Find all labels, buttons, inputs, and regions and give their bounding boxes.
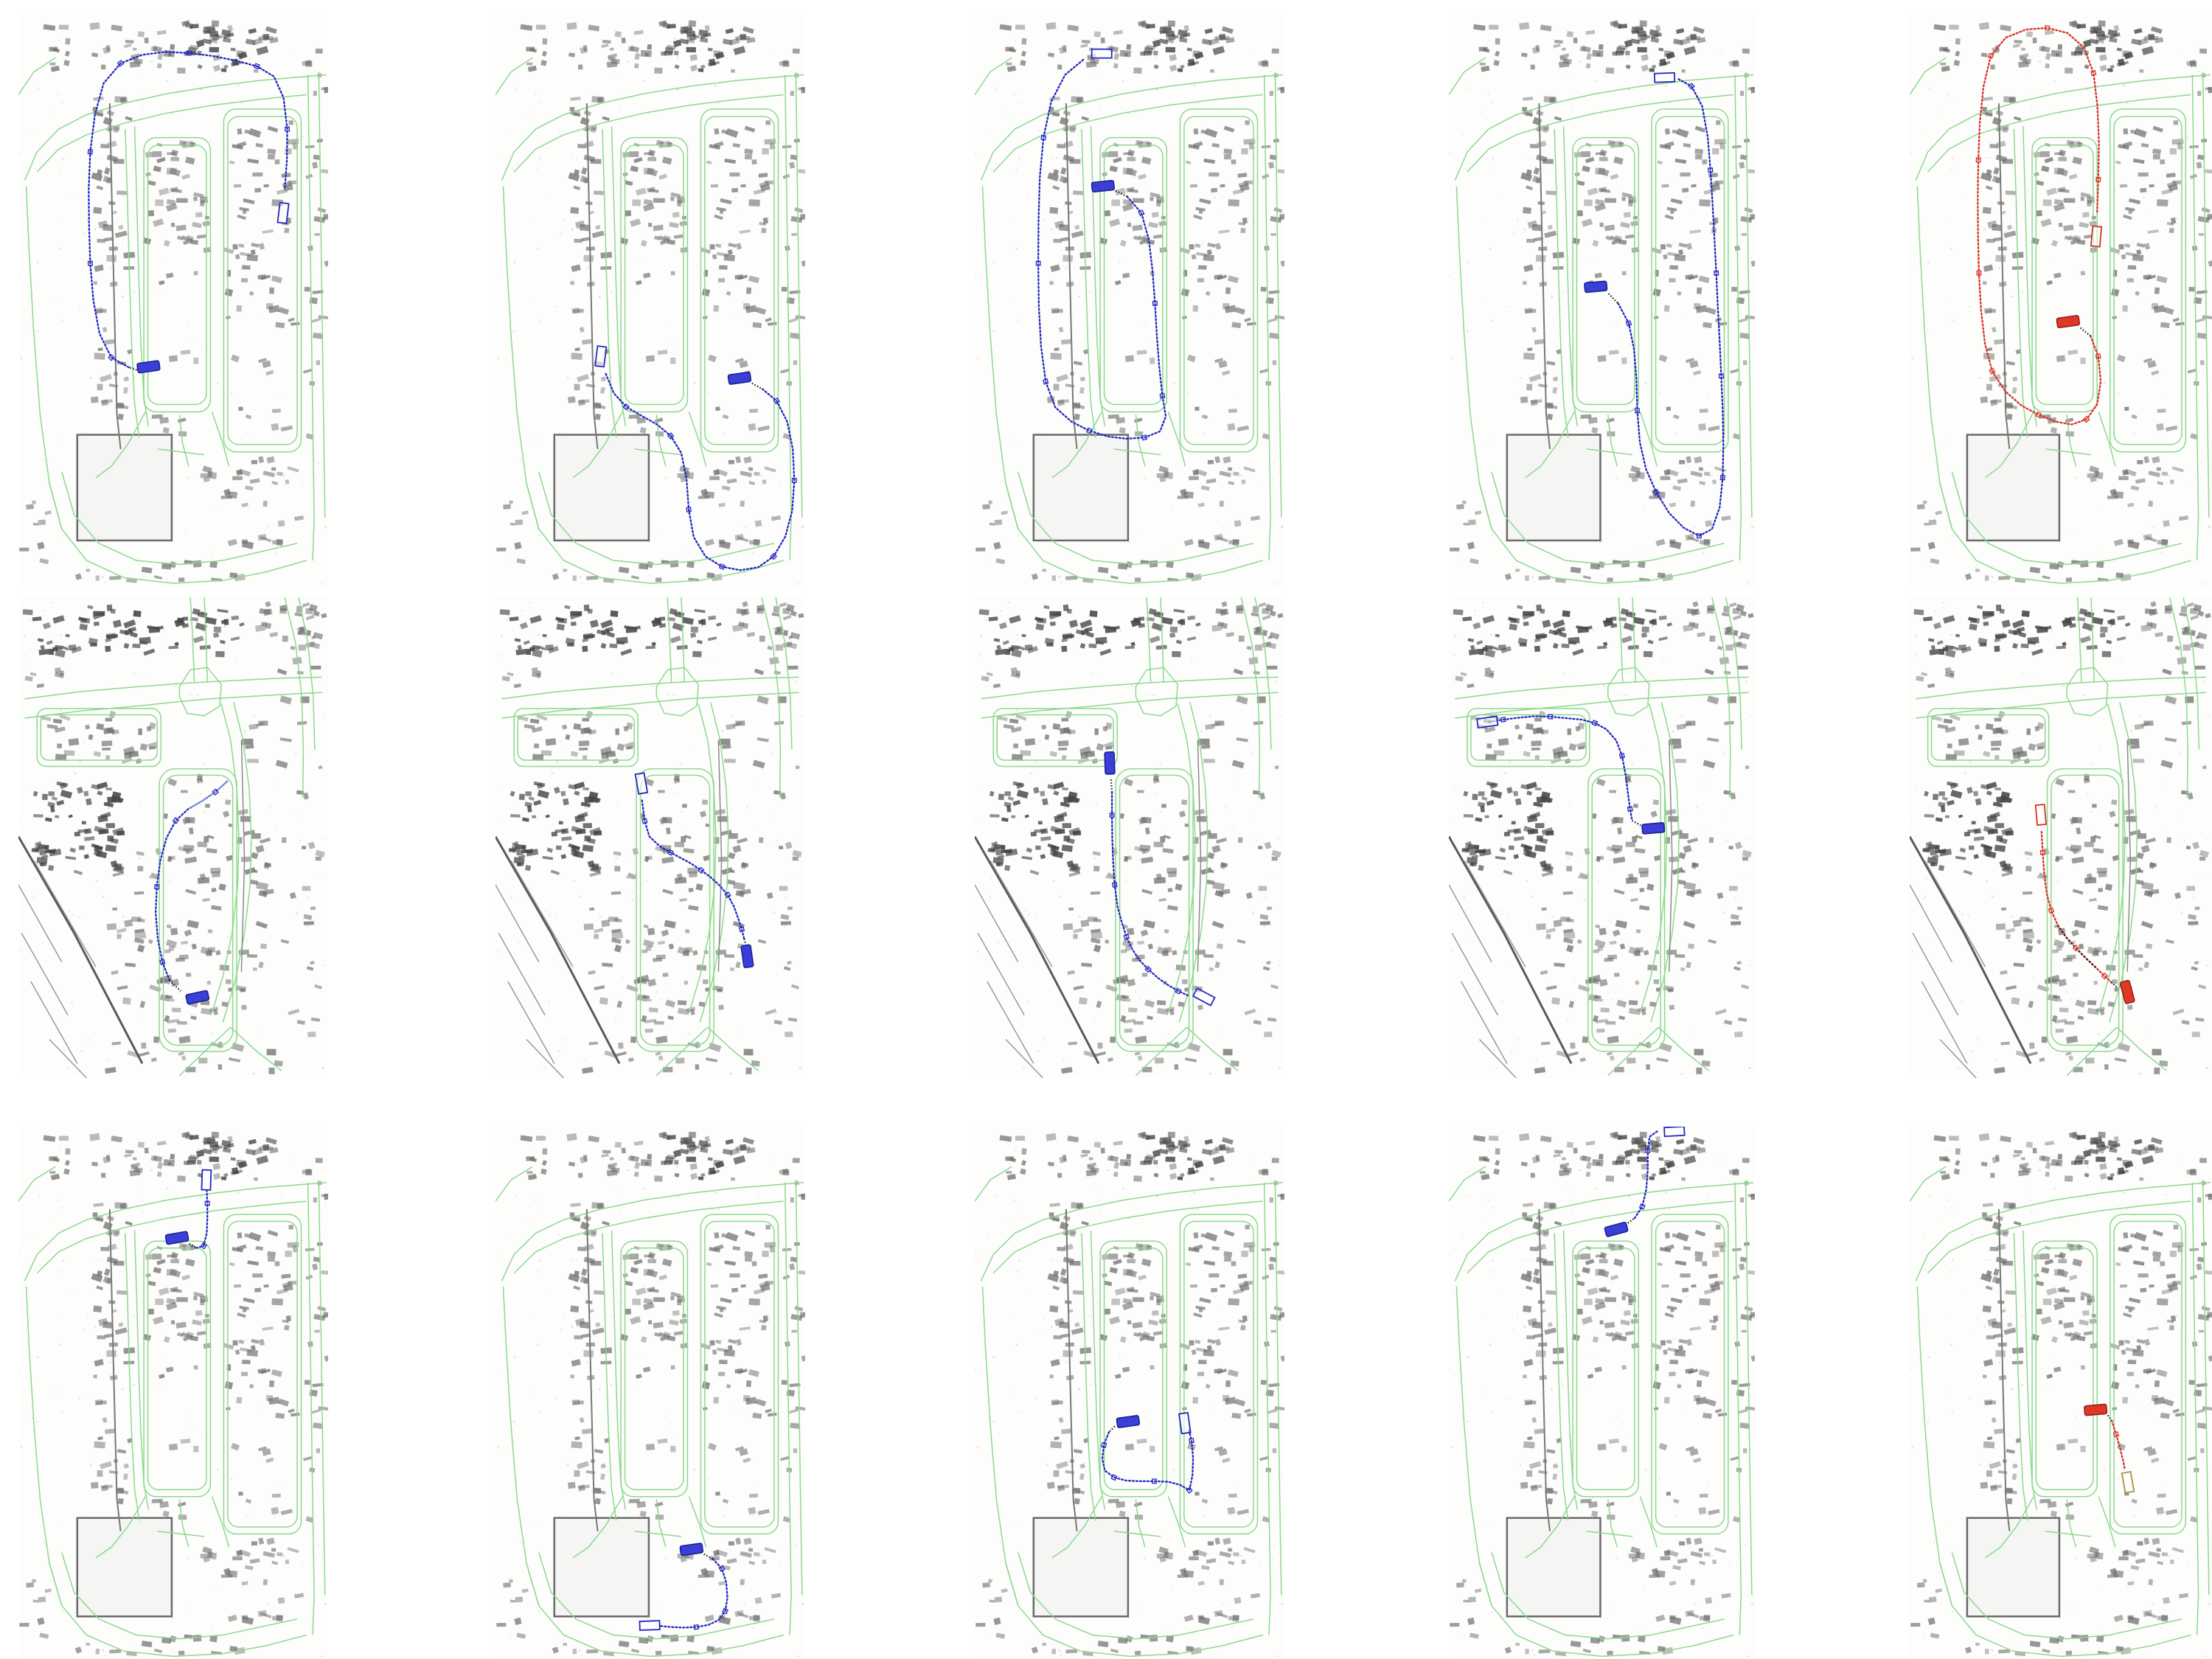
map-background — [1449, 1127, 1755, 1659]
map-compound-outline — [1034, 1518, 1128, 1617]
map-svg-r1c3 — [975, 15, 1284, 586]
map-background — [18, 1127, 328, 1659]
map-background — [1449, 595, 1755, 1078]
goal-box — [1179, 1413, 1191, 1433]
map-panel-r2c4 — [1449, 595, 1755, 1078]
map-panel-r1c2 — [495, 15, 805, 586]
map-background — [1910, 15, 2212, 586]
goal-box — [639, 1621, 659, 1630]
map-panel-r1c4 — [1449, 15, 1755, 586]
map-background — [975, 595, 1284, 1078]
map-svg-r3c5 — [1910, 1127, 2212, 1659]
map-svg-r3c3 — [975, 1127, 1284, 1659]
goal-box — [2091, 226, 2101, 247]
map-compound-outline — [554, 435, 649, 540]
map-compound-outline — [1967, 435, 2059, 540]
map-panel-r1c1 — [18, 15, 328, 586]
goal-box — [1477, 716, 1498, 728]
map-panel-r3c5 — [1910, 1127, 2212, 1659]
map-panel-r1c5 — [1910, 15, 2212, 586]
vehicle-box — [1105, 752, 1115, 774]
map-background — [495, 1127, 805, 1659]
map-panel-r2c5 — [1910, 595, 2212, 1078]
map-svg-r2c1 — [18, 595, 328, 1078]
map-svg-r1c1 — [18, 15, 328, 586]
map-background — [975, 1127, 1284, 1659]
map-compound-outline — [1507, 435, 1601, 540]
goal-box — [2036, 804, 2046, 825]
map-compound-outline — [77, 1518, 172, 1617]
vehicle-box — [2084, 1404, 2107, 1416]
map-svg-r2c5 — [1910, 595, 2212, 1078]
map-svg-r1c2 — [495, 15, 805, 586]
map-background — [975, 15, 1284, 586]
map-svg-r2c3 — [975, 595, 1284, 1078]
map-compound-outline — [554, 1518, 649, 1617]
map-panel-r2c2 — [495, 595, 805, 1078]
map-panel-r3c2 — [495, 1127, 805, 1659]
vehicle-box — [1091, 180, 1114, 192]
map-svg-r1c5 — [1910, 15, 2212, 586]
goal-box — [595, 346, 606, 366]
map-compound-outline — [1507, 1518, 1601, 1617]
map-compound-outline — [1967, 1518, 2059, 1617]
map-svg-r1c4 — [1449, 15, 1755, 586]
map-panel-r1c3 — [975, 15, 1284, 586]
map-compound-outline — [1034, 435, 1128, 540]
map-svg-r3c2 — [495, 1127, 805, 1659]
map-svg-r2c4 — [1449, 595, 1755, 1078]
map-panel-r3c1 — [18, 1127, 328, 1659]
map-svg-r3c4 — [1449, 1127, 1755, 1659]
goal-box — [201, 1170, 211, 1190]
map-background — [18, 15, 328, 586]
goal-box — [277, 203, 288, 223]
map-svg-r3c1 — [18, 1127, 328, 1659]
map-compound-outline — [77, 435, 172, 540]
map-panel-r3c4 — [1449, 1127, 1755, 1659]
map-panel-r3c3 — [975, 1127, 1284, 1659]
goal-box — [1655, 73, 1674, 83]
map-background — [495, 15, 805, 586]
map-background — [18, 595, 328, 1078]
map-background — [1910, 595, 2212, 1078]
map-panel-r2c3 — [975, 595, 1284, 1078]
trajectory-figure-grid — [0, 0, 2212, 1659]
map-background — [1910, 1127, 2212, 1659]
map-panel-r2c1 — [18, 595, 328, 1078]
vehicle-box — [1642, 823, 1665, 835]
goal-box — [1092, 49, 1112, 58]
map-background — [1449, 15, 1755, 586]
map-svg-r2c2 — [495, 595, 805, 1078]
goal-box — [1664, 1127, 1685, 1136]
vehicle-box — [1585, 281, 1607, 293]
